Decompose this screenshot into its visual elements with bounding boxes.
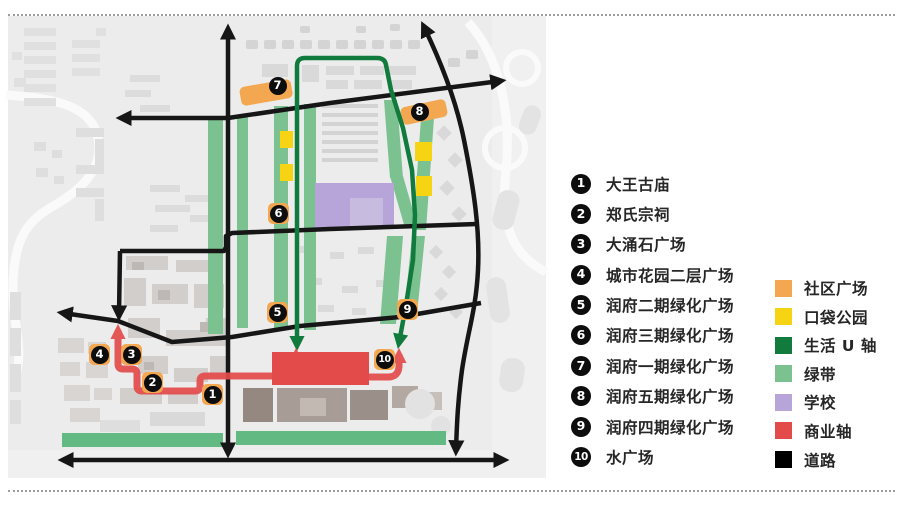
legend-color-pocket-park: 口袋公园 <box>775 308 877 326</box>
legend-color-life-u-axis: 生活 U 轴 <box>775 336 877 354</box>
pocket-park-swatch <box>775 308 792 325</box>
legend-item-2: 2郑氏宗祠 <box>571 203 734 224</box>
legend-color-key: 社区广场 口袋公园 生活 U 轴 绿带 学校 商业轴 道路 <box>775 279 877 469</box>
map-marker-10: 10 <box>374 349 395 370</box>
legend-number-badge: 3 <box>571 234 591 254</box>
legend-number-badge: 2 <box>571 204 591 224</box>
life-u-axis-swatch <box>775 337 792 354</box>
legend-item-9: 9润府四期绿化广场 <box>571 416 734 437</box>
map-marker-4: 4 <box>89 344 110 365</box>
legend-color-green-belt: 绿带 <box>775 365 877 383</box>
legend-item-1: 1大王古庙 <box>571 173 734 194</box>
map-marker-8: 8 <box>409 101 430 122</box>
legend-number-badge: 9 <box>571 417 591 437</box>
community-plaza-swatch <box>775 280 792 297</box>
legend-color-road: 道路 <box>775 451 877 469</box>
map-marker-5: 5 <box>267 302 288 323</box>
planning-map-page: 1 2 3 4 5 6 7 8 9 10 1大王古庙 2郑氏宗祠 3大涌石广场 … <box>0 0 900 513</box>
commercial-axis-swatch <box>775 422 792 439</box>
map-marker-7: 7 <box>267 75 288 96</box>
map-marker-9: 9 <box>397 299 418 320</box>
legend-color-community-plaza: 社区广场 <box>775 279 877 297</box>
legend-item-5: 5润府二期绿化广场 <box>571 295 734 316</box>
legend-number-badge: 7 <box>571 356 591 376</box>
legend-item-8: 8润府五期绿化广场 <box>571 386 734 407</box>
legend-number-badge: 10 <box>571 447 591 467</box>
legend-item-10: 10水广场 <box>571 447 734 468</box>
legend-item-3: 3大涌石广场 <box>571 234 734 255</box>
legend-number-badge: 5 <box>571 295 591 315</box>
legend-item-7: 7润府一期绿化广场 <box>571 355 734 376</box>
legend-number-badge: 1 <box>571 174 591 194</box>
legend-item-6: 6润府三期绿化广场 <box>571 325 734 346</box>
school-swatch <box>775 394 792 411</box>
legend-number-badge: 6 <box>571 325 591 345</box>
legend-color-commercial-axis: 商业轴 <box>775 422 877 440</box>
south-green-bands <box>62 431 446 447</box>
school-area <box>315 183 394 229</box>
map-marker-3: 3 <box>121 344 142 365</box>
legend-numbered-list: 1大王古庙 2郑氏宗祠 3大涌石广场 4城市花园二层广场 5润府二期绿化广场 6… <box>571 173 734 468</box>
legend-item-4: 4城市花园二层广场 <box>571 264 734 285</box>
legend-number-badge: 8 <box>571 386 591 406</box>
green-belt-swatch <box>775 365 792 382</box>
map-marker-6: 6 <box>268 203 289 224</box>
legend-color-school: 学校 <box>775 393 877 411</box>
legend-number-badge: 4 <box>571 265 591 285</box>
map-marker-2: 2 <box>142 372 163 393</box>
map-marker-1: 1 <box>202 384 223 405</box>
commercial-block <box>272 352 369 385</box>
road-swatch <box>775 451 792 468</box>
